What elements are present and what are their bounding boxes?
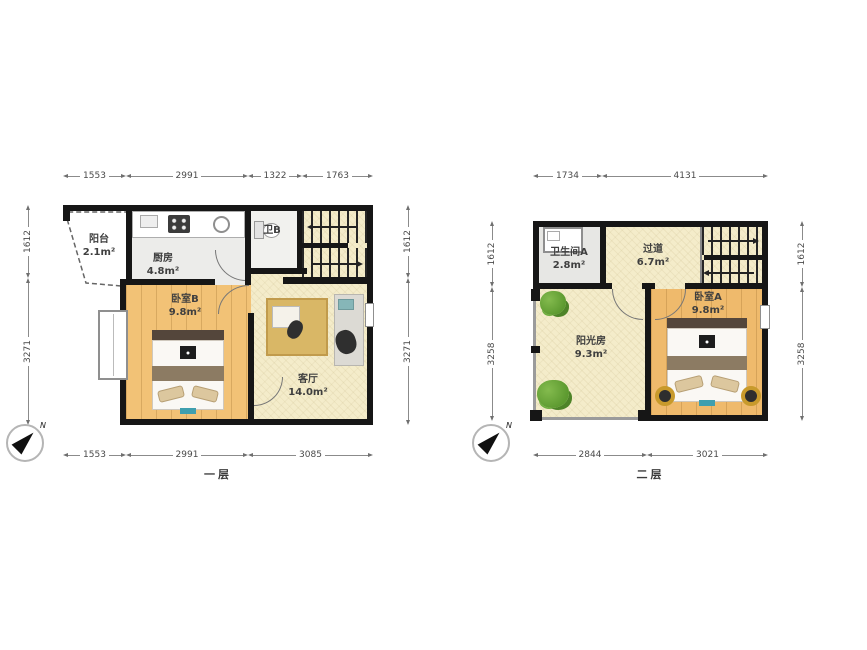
dim-value: 1553 bbox=[80, 170, 109, 182]
wall bbox=[645, 289, 651, 421]
stairs-arrow-icon bbox=[708, 240, 754, 242]
dim-value: 3085 bbox=[296, 449, 325, 461]
dimension-segment: 3258 bbox=[486, 287, 498, 421]
room-label-bathA: 卫生间A 2.8m² bbox=[534, 246, 604, 272]
floor2-title: 二层 bbox=[533, 466, 768, 482]
stairs-edge bbox=[700, 227, 702, 288]
dim-value: 2991 bbox=[173, 449, 202, 461]
bed-runner bbox=[699, 400, 715, 406]
dimension-segment: 3021 bbox=[647, 449, 768, 461]
dimension-segment: 1734 bbox=[533, 170, 602, 182]
floor2-plan: 卫生间A 2.8m² 过道 6.7m² 阳光房 9.3m² 卧室A 9.8m² … bbox=[0, 0, 867, 650]
room-area: 6.7m² bbox=[618, 256, 688, 269]
dimension-segment: 2844 bbox=[533, 449, 647, 461]
dimension-line-bottom: 2844 3021 bbox=[533, 449, 768, 461]
stool-icon bbox=[741, 386, 761, 406]
dim-value: 1322 bbox=[261, 170, 290, 182]
dimension-segment: 4131 bbox=[602, 170, 768, 182]
dim-arrow-icon bbox=[533, 174, 538, 178]
dim-arrow-icon bbox=[800, 287, 804, 292]
stairs-arrow-icon bbox=[708, 272, 754, 274]
dim-value: 2844 bbox=[576, 449, 605, 461]
bed-bench bbox=[667, 318, 747, 328]
dim-arrow-icon bbox=[490, 416, 494, 421]
room-name: 过道 bbox=[618, 243, 688, 256]
room-name: 卧室A bbox=[673, 291, 743, 304]
dim-value: 1734 bbox=[553, 170, 582, 182]
glass-wall bbox=[533, 289, 536, 417]
dim-arrow-icon bbox=[490, 282, 494, 287]
compass-north-label: N bbox=[506, 421, 512, 430]
dim-arrow-icon bbox=[763, 174, 768, 178]
room-label-sunroom: 阳光房 9.3m² bbox=[556, 335, 626, 361]
stool-icon bbox=[655, 386, 675, 406]
dim-arrow-icon bbox=[490, 221, 494, 226]
window bbox=[760, 305, 770, 329]
floorplan-canvas: 阳台 2.1m² 厨房 4.8m² 卫B 卧室B 9.8m² 客厅 14.0m²… bbox=[0, 0, 867, 650]
dim-value: 3021 bbox=[693, 449, 722, 461]
dim-value: 1612 bbox=[486, 240, 498, 269]
room-label-bedroomA: 卧室A 9.8m² bbox=[673, 291, 743, 317]
room-area: 9.8m² bbox=[673, 304, 743, 317]
dimension-line-left: 3258 1612 bbox=[486, 221, 498, 421]
dim-arrow-icon bbox=[533, 453, 538, 457]
dim-arrow-icon bbox=[800, 282, 804, 287]
dim-arrow-icon bbox=[647, 453, 652, 457]
wall-post bbox=[530, 410, 542, 421]
bed bbox=[667, 318, 747, 408]
dim-arrow-icon bbox=[800, 221, 804, 226]
dimension-segment: 3258 bbox=[796, 287, 808, 421]
wall bbox=[685, 283, 768, 289]
dim-value: 2991 bbox=[173, 170, 202, 182]
wall bbox=[533, 283, 612, 289]
dim-value: 4131 bbox=[671, 170, 700, 182]
bed-cushion-icon bbox=[699, 335, 715, 348]
room-label-hallway: 过道 6.7m² bbox=[618, 243, 688, 269]
compass-icon: N bbox=[472, 424, 510, 462]
wall bbox=[645, 415, 768, 421]
dim-value: 3258 bbox=[486, 340, 498, 369]
wall bbox=[533, 221, 768, 227]
dim-value: 1553 bbox=[80, 449, 109, 461]
dim-arrow-icon bbox=[800, 416, 804, 421]
bed-blanket bbox=[667, 356, 747, 370]
dimension-segment: 1612 bbox=[486, 221, 498, 287]
dimension-line-top: 1734 4131 bbox=[533, 170, 768, 182]
dim-value: 3258 bbox=[796, 340, 808, 369]
dim-arrow-icon bbox=[602, 174, 607, 178]
compass-north-needle-icon bbox=[478, 428, 505, 455]
wall-post bbox=[531, 289, 540, 301]
dimension-line-right: 3258 1612 bbox=[796, 221, 808, 421]
glass-wall bbox=[536, 417, 645, 420]
dim-value: 1612 bbox=[796, 240, 808, 269]
wall-post bbox=[531, 346, 540, 353]
dim-arrow-icon bbox=[490, 287, 494, 292]
wall-post bbox=[638, 410, 648, 421]
room-name: 阳光房 bbox=[556, 335, 626, 348]
dim-value: 1763 bbox=[323, 170, 352, 182]
dimension-segment: 1612 bbox=[796, 221, 808, 287]
room-name: 卫生间A bbox=[534, 246, 604, 259]
room-area: 9.3m² bbox=[556, 348, 626, 361]
room-area: 2.8m² bbox=[534, 259, 604, 272]
dim-arrow-icon bbox=[763, 453, 768, 457]
